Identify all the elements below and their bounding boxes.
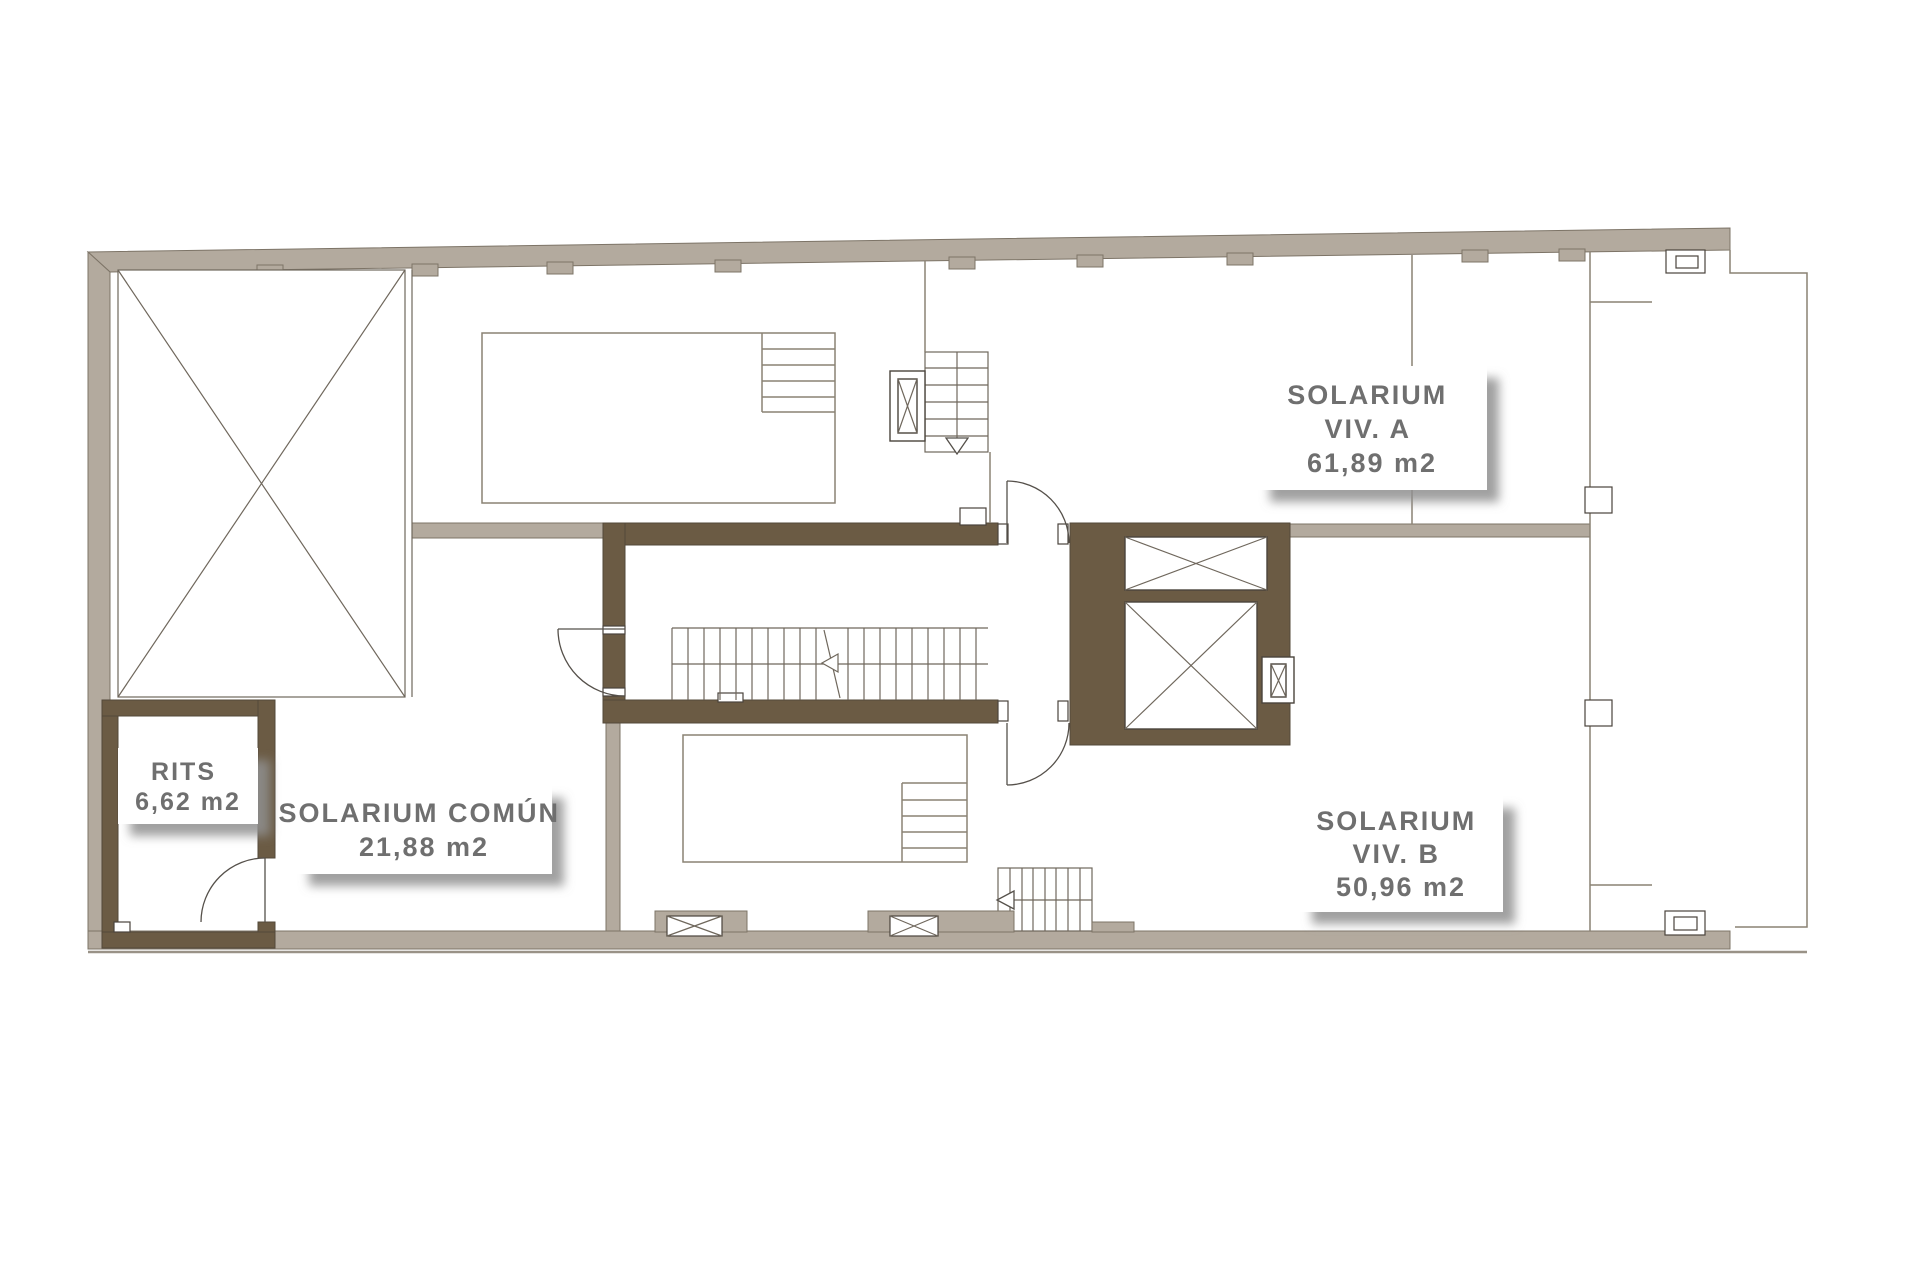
label-solarium-viv-a: SOLARIUM VIV. A 61,89 m2 [1258, 366, 1487, 490]
shaft-2 [1125, 602, 1257, 729]
stair-main [672, 628, 988, 700]
hatch-box [890, 371, 925, 441]
wall-niche-top [960, 508, 986, 525]
vent-x-2 [890, 916, 938, 936]
floor-plan-canvas: SOLARIUM VIV. A 61,89 m2 SOLARIUM VIV. B… [0, 0, 1920, 1280]
pool-lower [683, 735, 967, 862]
terrace-boundary [1730, 250, 1807, 927]
door-stairwell-right-top [998, 481, 1069, 544]
shaft-small [1262, 657, 1294, 703]
roof-vent-top [1666, 250, 1705, 273]
stair-lower [997, 868, 1134, 932]
label-solarium-viv-b: SOLARIUM VIV. B 50,96 m2 [1300, 796, 1503, 912]
stair-upper [890, 261, 990, 523]
stair-direction-arrow [997, 891, 1014, 909]
line-connector-box-top [1585, 487, 1612, 513]
partition-right-of-core [1268, 524, 1590, 537]
wall-step [1092, 922, 1134, 932]
partition-left-of-core [412, 523, 603, 538]
stairwell-bottom-wall [603, 700, 998, 723]
door-stairwell-right-bottom [998, 701, 1069, 785]
stairwell-top-wall [603, 523, 998, 545]
pool-upper [482, 333, 835, 503]
label-rits: RITS 6,62 m2 [118, 748, 258, 824]
roof-vent-bottom [1665, 911, 1705, 935]
vent-x-1 [667, 916, 722, 936]
rits-niche [114, 922, 130, 932]
line-connector-box-bottom [1585, 700, 1612, 726]
label-solarium-comun: SOLARIUM COMÚN 21,88 m2 [279, 786, 570, 874]
wall-niche-bottom [718, 693, 743, 702]
partition-below-core [606, 723, 620, 931]
door-rits [201, 858, 265, 922]
shaft-1 [1125, 537, 1267, 590]
floor-plan: SOLARIUM VIV. A 61,89 m2 SOLARIUM VIV. B… [0, 0, 1920, 1280]
patio-cross [118, 270, 412, 697]
